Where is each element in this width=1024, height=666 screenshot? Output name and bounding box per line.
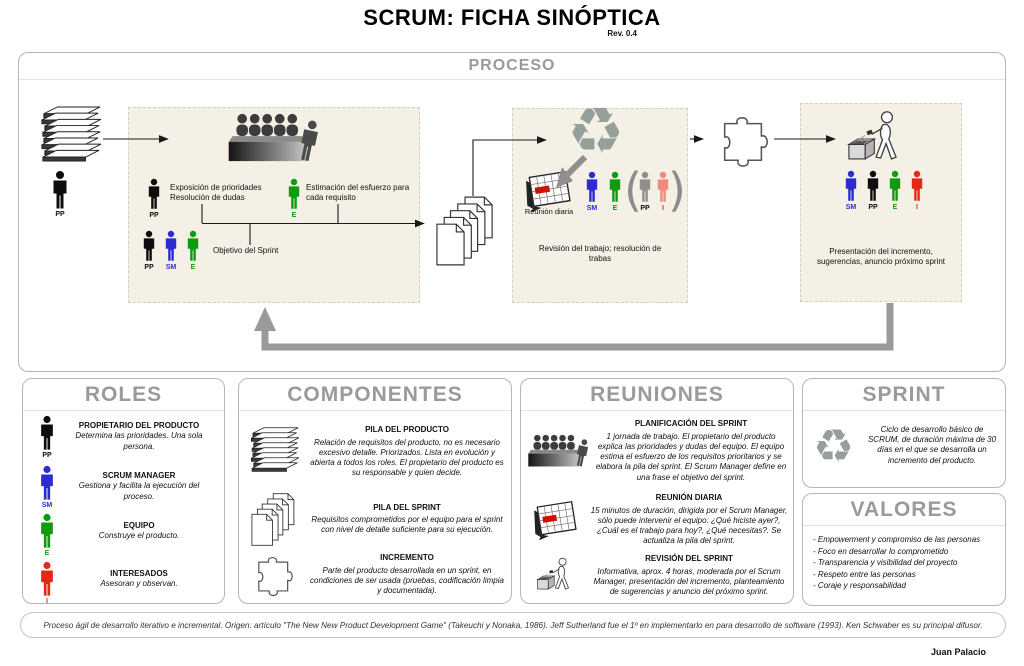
person-pp-objetivo: PP [141,229,157,271]
reunion-desc: 15 minutos de duración, dirigida por el … [589,506,789,547]
person-e-daily: E [607,170,623,212]
person-label: E [45,550,50,557]
person-label: SM [846,204,857,211]
meeting-table-icon [226,112,320,164]
person-label: E [613,205,618,212]
person-pp-review: PP [865,169,881,211]
sprint-panel: SPRINT ♻ Ciclo de desarrollo básico de S… [802,378,1006,488]
daily-taskboard-icon [527,500,585,540]
person-icon [38,415,56,451]
person-sm-objetivo: SM [163,229,179,271]
role-title: EQUIPO [63,521,215,531]
increment-puzzle-icon [716,112,772,168]
person-i-review: I [909,169,925,211]
person-icon [50,170,70,210]
person-icon [843,169,859,203]
person-label: SM [166,264,177,271]
componente-desc: Requisitos comprometidos por el equipo p… [307,515,507,535]
sprint-heading: SPRINT [803,379,1005,411]
role-item-pp: PROPIETARIO DEL PRODUCTO Determina las p… [63,421,215,452]
person-label: PP [149,212,158,219]
revision-trabajo-text: Revisión del trabajo; resolución de trab… [538,244,662,264]
role-item-i: INTERESADOS Asesoran y observan. [63,569,215,590]
person-label: E [191,264,196,271]
reunion-title: PLANIFICACIÓN DEL SPRINT [593,419,789,429]
role-title: SCRUM MANAGER [63,471,215,481]
objetivo-sprint-text: Objetivo del Sprint [213,246,297,256]
paper-stack-icon-svg [247,427,301,477]
person-icon [607,170,623,204]
person-icon [141,229,157,263]
puzzle-icon [245,553,303,597]
paren-close-glyph: ) [668,168,686,212]
valor-item: - Respeto entre las personas [813,569,1001,581]
meeting-table-icon [527,431,589,471]
roles-heading: ROLES [23,379,224,411]
reunion-revision: REVISIÓN DEL SPRINT Informativa, aprox. … [527,551,789,601]
person-label: I [916,204,918,211]
person-icon [185,229,201,263]
person-e-objetivo: E [185,229,201,271]
reunion-diaria: REUNIÓN DIARIA 15 minutos de duración, d… [527,491,789,549]
puzzle-icon-svg [252,553,296,597]
paper-stack-icon [245,427,303,477]
estimacion-text: Estimación del esfuerzo para cada requis… [306,183,418,203]
proceso-heading: PROCESO [19,53,1005,80]
role-desc: Gestiona y facilita la ejecución del pro… [63,481,215,501]
componentes-panel: COMPONENTES PILA DEL PRODUCTO Relación d… [238,378,512,604]
person-icon [887,169,903,203]
reunion-text: REUNIÓN DIARIA 15 minutos de duración, d… [589,493,789,546]
componente-text: INCREMENTO Parte del producto desarrolla… [307,553,507,596]
reunion-desc: Informativa, aprox. 4 horas, moderada po… [589,567,789,598]
componente-title: PILA DEL SPRINT [307,503,507,513]
sheets-icon [245,493,303,546]
componentes-heading: COMPONENTES [239,379,511,411]
componente-pila-producto: PILA DEL PRODUCTO Relación de requisitos… [245,415,507,489]
person-icon [286,177,302,211]
valor-item: - Empowerment y compromiso de las person… [813,534,1001,546]
componente-pila-sprint: PILA DEL SPRINT Requisitos comprometidos… [245,493,507,545]
role-item-sm: SCRUM MANAGER Gestiona y facilita la eje… [63,471,215,502]
sheets-icon-svg [251,493,297,546]
componente-text: PILA DEL SPRINT Requisitos comprometidos… [307,503,507,536]
person-icon [163,229,179,263]
role-title: PROPIETARIO DEL PRODUCTO [63,421,215,431]
role-figure-e: E [38,513,56,557]
person-label: PP [868,204,877,211]
role-desc: Determina las prioridades. Una sola pers… [63,431,215,451]
role-figure-i: I [38,561,56,605]
sprint-recycle-icon: ♻ [813,423,854,469]
person-e-review: E [887,169,903,211]
person-label: I [662,205,664,212]
sprint-cycle-recycle-icon: ♻ [567,100,624,164]
person-label: PP [42,452,51,459]
person-sm-daily: SM [584,170,600,212]
person-label: PP [144,264,153,271]
page-title: SCRUM: FICHA SINÓPTICA [0,5,1024,31]
person-label: I [46,598,48,605]
role-title: INTERESADOS [63,569,215,579]
componente-incremento: INCREMENTO Parte del producto desarrolla… [245,549,507,601]
componente-title: PILA DEL PRODUCTO [307,425,507,435]
daily-taskboard-icon [524,170,574,212]
person-pp-exposicion: PP [146,177,162,219]
person-icon [38,561,56,597]
person-label: PP [640,205,649,212]
role-item-e: EQUIPO Construye el producto. [63,521,215,542]
person-label: E [893,204,898,211]
person-icon [38,465,56,501]
sprint-backlog-sheets-icon [436,196,496,266]
reunion-diaria-caption: Reunión diaria [506,207,592,217]
person-pp-daily-observer: PP [637,170,653,212]
person-label: E [292,212,297,219]
reunion-title: REVISIÓN DEL SPRINT [589,554,789,564]
person-label: SM [587,205,598,212]
person-label: SM [42,502,53,509]
demo-box-icon [842,110,912,168]
product-backlog-stack-icon [38,106,102,168]
footer-note: Proceso ágil de desarrollo iterativo e i… [20,612,1006,638]
valor-item: - Transparencia y visibilidad del proyec… [813,557,1001,569]
person-icon [584,170,600,204]
valor-item: - Foco en desarrollar lo comprometido [813,546,1001,558]
componente-text: PILA DEL PRODUCTO Relación de requisitos… [307,425,507,478]
role-desc: Asesoran y observan. [63,579,215,589]
person-icon [865,169,881,203]
person-label: PP [55,211,64,218]
role-figure-sm: SM [38,465,56,509]
person-icon [909,169,925,203]
revision-label: Rev. 0.4 [480,29,637,38]
person-sm-review: SM [843,169,859,211]
reunion-planificacion: PLANIFICACIÓN DEL SPRINT 1 jornada de tr… [527,413,789,489]
person-icon [38,513,56,549]
presentacion-text: Presentación del incremento, sugerencias… [806,247,956,267]
sprint-desc: Ciclo de desarrollo básico de SCRUM, de … [865,425,999,466]
reunion-title: REUNIÓN DIARIA [589,493,789,503]
daily-taskboard-icon-svg [533,500,579,540]
reunion-text: PLANIFICACIÓN DEL SPRINT 1 jornada de tr… [593,419,789,483]
person-icon [146,177,162,211]
person-equipo-estimacion: E [286,177,302,219]
meeting-table-icon-svg [527,431,589,471]
role-desc: Construye el producto. [63,531,215,541]
demo-box-icon-svg [534,556,578,596]
author-credit: Juan Palacio [931,647,986,657]
exposicion-text: Exposición de prioridades Resolución de … [170,183,274,203]
person-product-owner-source: PP [50,170,70,218]
valores-panel: VALORES - Empowerment y compromiso de la… [802,493,1006,606]
reunion-text: REVISIÓN DEL SPRINT Informativa, aprox. … [589,554,789,597]
person-icon [637,170,653,204]
role-figure-pp: PP [38,415,56,459]
roles-panel: ROLES PP PROPIETARIO DEL PRODUCTO Determ… [22,378,225,604]
reuniones-panel: REUNIONES PLANIFICACIÓN DEL SPRINT 1 jor… [520,378,794,604]
reunion-desc: 1 jornada de trabajo. El propietario del… [593,432,789,483]
componente-title: INCREMENTO [307,553,507,563]
valores-heading: VALORES [803,494,1005,526]
demo-box-icon [527,556,585,596]
reuniones-heading: REUNIONES [521,379,793,411]
valores-list: - Empowerment y compromiso de las person… [813,534,1001,592]
componente-desc: Relación de requisitos del producto, no … [307,438,507,479]
componente-desc: Parte del producto desarrollada en un sp… [307,566,507,597]
scrum-ficha-sinoptica-poster: SCRUM: FICHA SINÓPTICA Rev. 0.4 PROCESO … [0,0,1024,666]
valor-item: - Coraje y responsabilidad [813,580,1001,592]
